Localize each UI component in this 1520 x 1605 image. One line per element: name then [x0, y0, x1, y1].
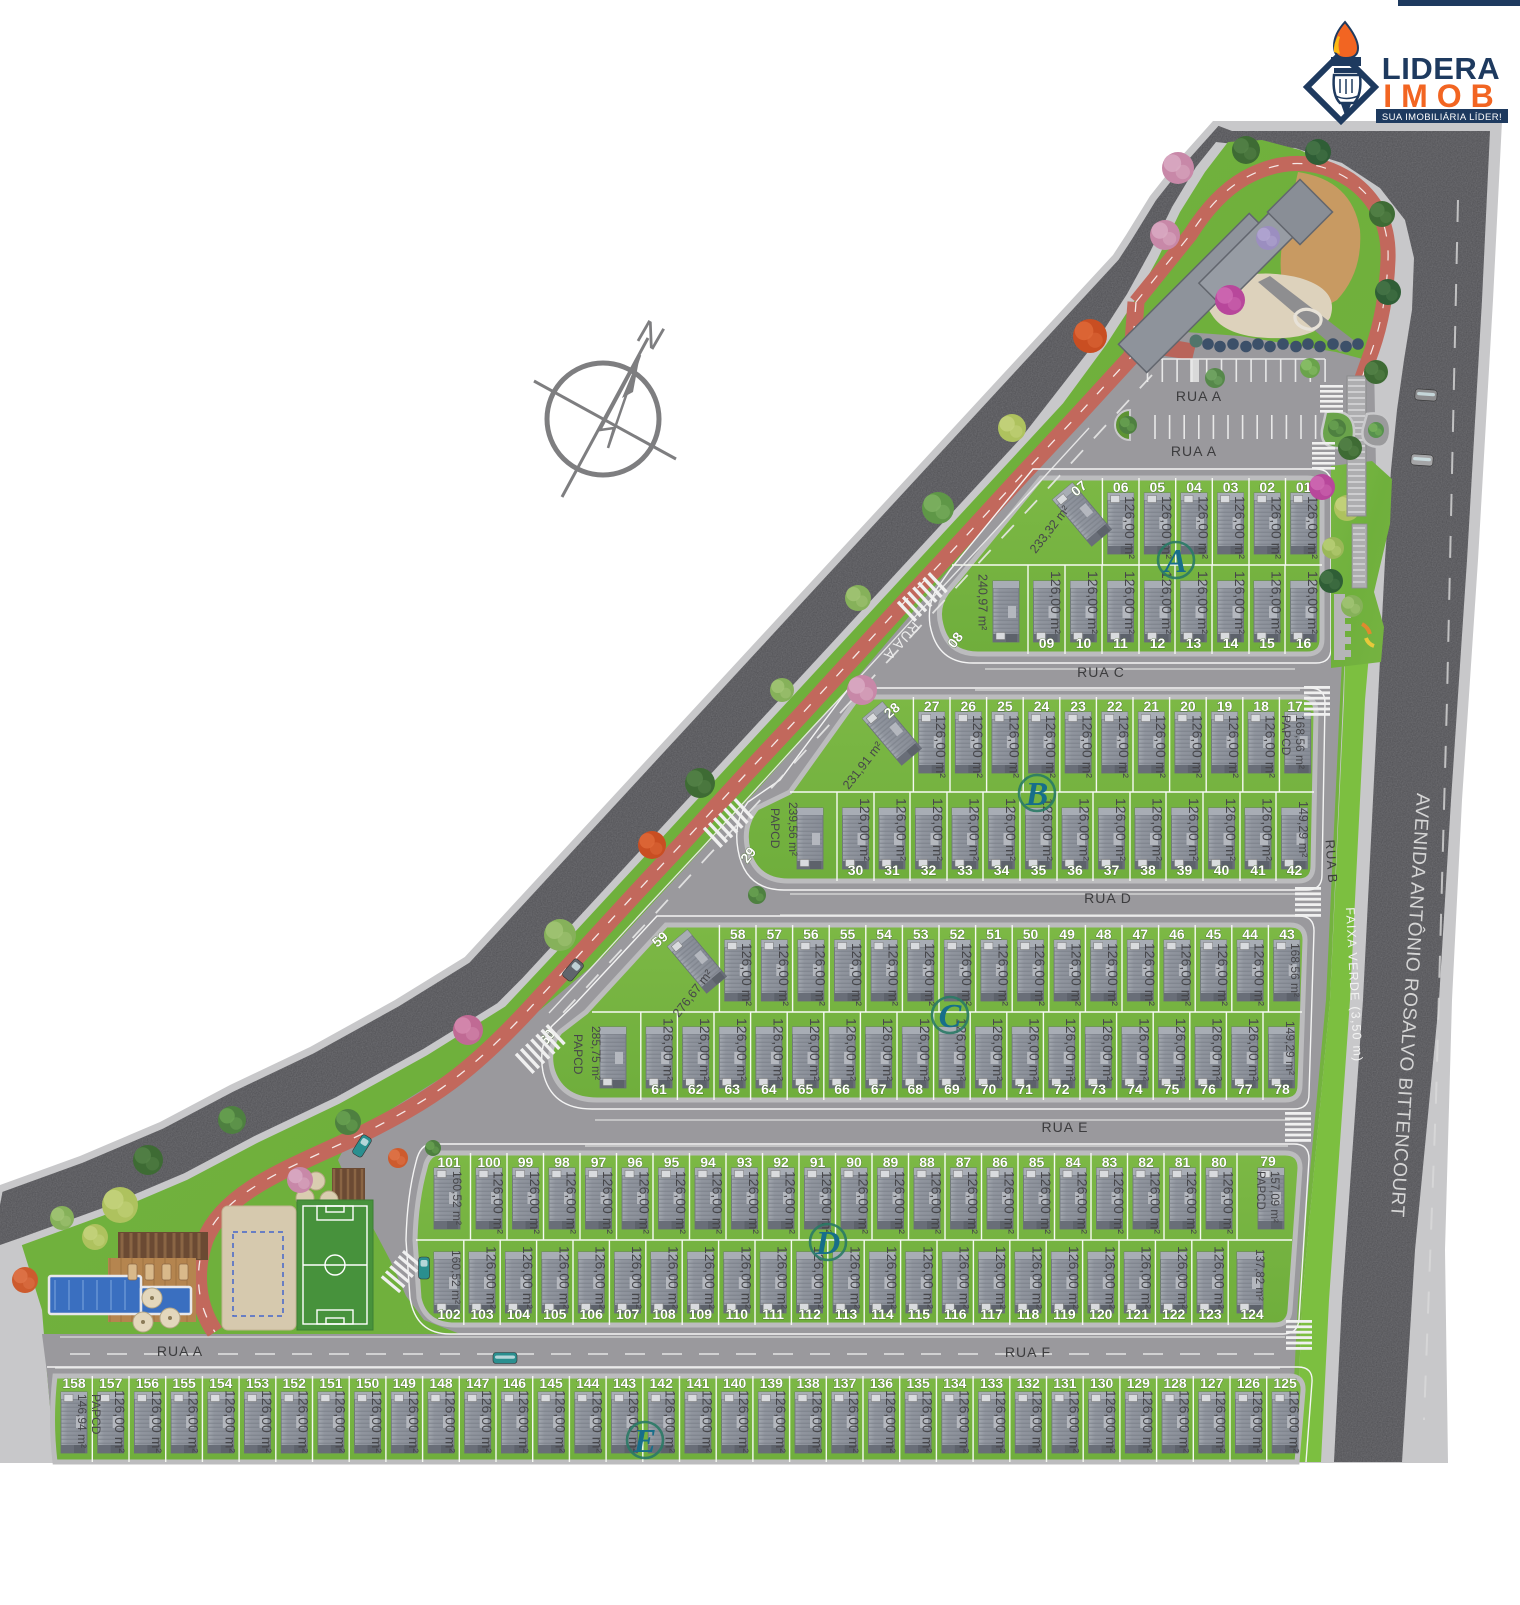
svg-text:A: A [1163, 543, 1188, 580]
svg-text:26: 26 [961, 698, 977, 714]
svg-text:137,82 m²: 137,82 m² [1253, 1249, 1265, 1301]
svg-text:126,00 m²: 126,00 m² [600, 1171, 616, 1234]
svg-text:126,00 m²: 126,00 m² [149, 1390, 165, 1453]
svg-text:126,00 m²: 126,00 m² [930, 798, 946, 861]
svg-text:72: 72 [1054, 1081, 1070, 1097]
svg-text:93: 93 [737, 1154, 753, 1170]
svg-text:73: 73 [1091, 1081, 1107, 1097]
svg-text:42: 42 [1287, 862, 1303, 878]
svg-text:126,00 m²: 126,00 m² [699, 1390, 715, 1453]
svg-text:66: 66 [834, 1081, 850, 1097]
svg-text:126,00 m²: 126,00 m² [1136, 1018, 1152, 1081]
svg-text:87: 87 [956, 1154, 972, 1170]
svg-text:126,00 m²: 126,00 m² [1232, 496, 1248, 559]
svg-text:126,00 m²: 126,00 m² [1213, 1390, 1229, 1453]
svg-text:150: 150 [356, 1375, 380, 1391]
svg-text:126,00 m²: 126,00 m² [1069, 943, 1085, 1006]
svg-text:84: 84 [1065, 1154, 1081, 1170]
svg-text:126,00 m²: 126,00 m² [1006, 715, 1022, 778]
svg-text:D: D [815, 1225, 841, 1262]
svg-text:97: 97 [591, 1154, 607, 1170]
svg-text:82: 82 [1138, 1154, 1154, 1170]
svg-text:126,00 m²: 126,00 m² [553, 1390, 569, 1453]
svg-text:38: 38 [1140, 862, 1156, 878]
svg-text:285,75 m²: 285,75 m² [589, 1026, 603, 1080]
svg-text:75: 75 [1164, 1081, 1180, 1097]
svg-text:143: 143 [613, 1375, 637, 1391]
svg-text:126,00 m²: 126,00 m² [965, 1171, 981, 1234]
svg-text:88: 88 [919, 1154, 935, 1170]
svg-text:23: 23 [1070, 698, 1086, 714]
svg-text:126,00 m²: 126,00 m² [697, 1018, 713, 1081]
svg-text:126,00 m²: 126,00 m² [1048, 571, 1064, 634]
svg-text:126,00 m²: 126,00 m² [920, 1390, 936, 1453]
svg-text:126,00 m²: 126,00 m² [1246, 1018, 1262, 1081]
svg-text:126,00 m²: 126,00 m² [663, 1390, 679, 1453]
svg-text:126,00 m²: 126,00 m² [1195, 571, 1211, 634]
svg-text:17: 17 [1287, 698, 1303, 714]
svg-text:61: 61 [651, 1081, 667, 1097]
svg-text:92: 92 [773, 1154, 789, 1170]
svg-text:PAPCD: PAPCD [768, 808, 782, 849]
svg-text:126,00 m²: 126,00 m² [520, 1246, 536, 1309]
svg-text:52: 52 [950, 926, 966, 942]
svg-text:11: 11 [1113, 635, 1128, 651]
svg-text:126,00 m²: 126,00 m² [848, 1246, 864, 1309]
svg-text:126,00 m²: 126,00 m² [993, 1246, 1009, 1309]
svg-text:157,09 m²: 157,09 m² [1268, 1171, 1280, 1223]
svg-text:126,00 m²: 126,00 m² [1153, 715, 1169, 778]
svg-text:69: 69 [944, 1081, 960, 1097]
svg-text:15: 15 [1259, 635, 1275, 651]
svg-text:133: 133 [980, 1375, 1004, 1391]
svg-text:142: 142 [650, 1375, 674, 1391]
svg-text:126,00 m²: 126,00 m² [222, 1390, 238, 1453]
svg-text:21: 21 [1144, 698, 1160, 714]
svg-text:168,56 m²: 168,56 m² [1293, 715, 1307, 769]
svg-text:126,00 m²: 126,00 m² [484, 1246, 500, 1309]
svg-text:126,00 m²: 126,00 m² [770, 1018, 786, 1081]
svg-text:126,00 m²: 126,00 m² [1075, 1171, 1091, 1234]
svg-text:126,00 m²: 126,00 m² [1103, 1390, 1119, 1453]
svg-text:22: 22 [1107, 698, 1123, 714]
svg-text:128: 128 [1163, 1375, 1187, 1391]
svg-text:RUA A: RUA A [1171, 443, 1217, 459]
svg-text:83: 83 [1102, 1154, 1118, 1170]
svg-text:126,00 m²: 126,00 m² [773, 1390, 789, 1453]
svg-text:RUA E: RUA E [1041, 1119, 1088, 1135]
svg-text:126,00 m²: 126,00 m² [929, 1171, 945, 1234]
svg-text:RUA A: RUA A [1176, 388, 1222, 404]
svg-text:126,00 m²: 126,00 m² [957, 1246, 973, 1309]
svg-text:125: 125 [1273, 1375, 1297, 1391]
svg-text:135: 135 [906, 1375, 930, 1391]
svg-text:39: 39 [1177, 862, 1193, 878]
svg-text:126,00 m²: 126,00 m² [1223, 798, 1239, 861]
svg-text:91: 91 [810, 1154, 826, 1170]
svg-text:05: 05 [1150, 479, 1166, 495]
svg-text:126,00 m²: 126,00 m² [1142, 943, 1158, 1006]
svg-text:33: 33 [957, 862, 973, 878]
svg-text:30: 30 [848, 862, 864, 878]
svg-text:126,00 m²: 126,00 m² [970, 715, 986, 778]
svg-text:126,00 m²: 126,00 m² [1032, 943, 1048, 1006]
svg-text:56: 56 [803, 926, 819, 942]
svg-text:240,97 m²: 240,97 m² [976, 574, 990, 630]
svg-text:77: 77 [1237, 1081, 1253, 1097]
svg-text:62: 62 [688, 1081, 704, 1097]
svg-text:126,00 m²: 126,00 m² [1140, 1390, 1156, 1453]
svg-text:126,00 m²: 126,00 m² [1189, 715, 1205, 778]
svg-text:13: 13 [1186, 635, 1202, 651]
svg-text:126,00 m²: 126,00 m² [1066, 1390, 1082, 1453]
svg-text:40: 40 [1214, 862, 1230, 878]
svg-text:126,00 m²: 126,00 m² [1003, 798, 1019, 861]
svg-text:138: 138 [796, 1375, 820, 1391]
svg-text:53: 53 [913, 926, 929, 942]
svg-text:126,00 m²: 126,00 m² [1030, 1246, 1046, 1309]
svg-text:48: 48 [1096, 926, 1112, 942]
svg-text:71: 71 [1017, 1081, 1033, 1097]
svg-text:126,00 m²: 126,00 m² [479, 1390, 495, 1453]
svg-text:168,56 m²: 168,56 m² [1288, 943, 1302, 997]
svg-text:57: 57 [767, 926, 783, 942]
svg-text:16: 16 [1296, 635, 1312, 651]
svg-text:78: 78 [1274, 1081, 1290, 1097]
svg-text:126,00 m²: 126,00 m² [1250, 1390, 1266, 1453]
svg-text:126,00 m²: 126,00 m² [556, 1246, 572, 1309]
svg-text:20: 20 [1180, 698, 1196, 714]
svg-text:126,00 m²: 126,00 m² [702, 1246, 718, 1309]
svg-text:126,00 m²: 126,00 m² [589, 1390, 605, 1453]
svg-text:PAPCD: PAPCD [571, 1034, 585, 1075]
svg-text:99: 99 [518, 1154, 534, 1170]
svg-text:126,00 m²: 126,00 m² [1116, 715, 1132, 778]
svg-text:C: C [939, 998, 962, 1035]
svg-text:126,00 m²: 126,00 m² [810, 1390, 826, 1453]
svg-text:126,00 m²: 126,00 m² [1173, 1018, 1189, 1081]
svg-text:18: 18 [1253, 698, 1269, 714]
svg-text:144: 144 [576, 1375, 600, 1391]
svg-text:79: 79 [1260, 1153, 1276, 1169]
svg-text:RUA A: RUA A [157, 1343, 203, 1359]
svg-text:134: 134 [943, 1375, 967, 1391]
svg-text:126,00 m²: 126,00 m² [734, 1018, 750, 1081]
svg-text:126,00 m²: 126,00 m² [1002, 1171, 1018, 1234]
svg-text:126,00 m²: 126,00 m² [369, 1390, 385, 1453]
svg-text:124: 124 [1240, 1306, 1264, 1322]
svg-text:140: 140 [723, 1375, 747, 1391]
svg-text:126,00 m²: 126,00 m² [112, 1390, 128, 1453]
svg-text:51: 51 [986, 926, 1002, 942]
svg-text:126,00 m²: 126,00 m² [894, 798, 910, 861]
svg-text:50: 50 [1023, 926, 1039, 942]
svg-text:126,00 m²: 126,00 m² [1102, 1246, 1118, 1309]
svg-text:126,00 m²: 126,00 m² [1212, 1246, 1228, 1309]
svg-text:64: 64 [761, 1081, 777, 1097]
svg-text:10: 10 [1076, 635, 1092, 651]
svg-text:126,00 m²: 126,00 m² [1252, 943, 1268, 1006]
svg-text:126,00 m²: 126,00 m² [1215, 943, 1231, 1006]
svg-text:70: 70 [981, 1081, 997, 1097]
svg-text:19: 19 [1217, 698, 1233, 714]
svg-text:126,00 m²: 126,00 m² [995, 943, 1011, 1006]
svg-text:148: 148 [429, 1375, 453, 1391]
svg-text:43: 43 [1279, 926, 1295, 942]
svg-text:126,00 m²: 126,00 m² [776, 943, 792, 1006]
svg-text:B: B [1025, 776, 1049, 813]
svg-text:95: 95 [664, 1154, 680, 1170]
svg-text:PAPCD: PAPCD [89, 1394, 103, 1435]
svg-text:127: 127 [1200, 1375, 1224, 1391]
svg-text:155: 155 [172, 1375, 196, 1391]
svg-text:126,00 m²: 126,00 m² [775, 1246, 791, 1309]
svg-text:126,00 m²: 126,00 m² [856, 1171, 872, 1234]
svg-text:126,00 m²: 126,00 m² [746, 1171, 762, 1234]
svg-text:67: 67 [871, 1081, 887, 1097]
svg-text:RUA C: RUA C [1077, 664, 1125, 680]
svg-text:74: 74 [1127, 1081, 1143, 1097]
svg-text:90: 90 [846, 1154, 862, 1170]
svg-text:146: 146 [503, 1375, 527, 1391]
svg-text:126,00 m²: 126,00 m² [844, 1018, 860, 1081]
svg-text:126,00 m²: 126,00 m² [1111, 1171, 1127, 1234]
svg-text:132: 132 [1017, 1375, 1041, 1391]
svg-text:126,00 m²: 126,00 m² [922, 943, 938, 1006]
svg-text:126,00 m²: 126,00 m² [917, 1018, 933, 1081]
svg-text:129: 129 [1127, 1375, 1151, 1391]
svg-text:32: 32 [921, 862, 937, 878]
svg-text:126,00 m²: 126,00 m² [296, 1390, 312, 1453]
svg-text:158: 158 [62, 1375, 86, 1391]
svg-text:80: 80 [1211, 1154, 1227, 1170]
svg-text:151: 151 [319, 1375, 343, 1391]
svg-text:126,00 m²: 126,00 m² [1210, 1018, 1226, 1081]
svg-text:44: 44 [1242, 926, 1258, 942]
svg-text:126,00 m²: 126,00 m² [1030, 1390, 1046, 1453]
svg-text:41: 41 [1250, 862, 1266, 878]
svg-text:146,94 m²: 146,94 m² [75, 1394, 89, 1448]
svg-text:126,00 m²: 126,00 m² [920, 1246, 936, 1309]
svg-text:89: 89 [883, 1154, 899, 1170]
svg-text:55: 55 [840, 926, 856, 942]
svg-text:85: 85 [1029, 1154, 1045, 1170]
svg-text:126,00 m²: 126,00 m² [1184, 1171, 1200, 1234]
svg-text:34: 34 [994, 862, 1010, 878]
svg-text:RUA F: RUA F [1005, 1344, 1051, 1360]
svg-text:239,56 m²: 239,56 m² [786, 802, 800, 856]
svg-text:126,00 m²: 126,00 m² [1139, 1246, 1155, 1309]
svg-text:126,00 m²: 126,00 m² [1221, 1171, 1237, 1234]
svg-text:147: 147 [466, 1375, 490, 1391]
svg-text:126,00 m²: 126,00 m² [1027, 1018, 1043, 1081]
svg-text:126,00 m²: 126,00 m² [1305, 571, 1321, 634]
svg-text:157: 157 [99, 1375, 123, 1391]
svg-text:126,00 m²: 126,00 m² [1178, 943, 1194, 1006]
svg-text:68: 68 [908, 1081, 924, 1097]
svg-text:126,00 m²: 126,00 m² [666, 1246, 682, 1309]
svg-text:102: 102 [437, 1306, 461, 1322]
svg-text:126,00 m²: 126,00 m² [1038, 1171, 1054, 1234]
svg-text:IMOB: IMOB [1383, 78, 1503, 114]
svg-text:126,00 m²: 126,00 m² [1226, 715, 1242, 778]
svg-text:02: 02 [1259, 479, 1275, 495]
svg-text:126,00 m²: 126,00 m² [892, 1171, 908, 1234]
svg-text:126,00 m²: 126,00 m² [846, 1390, 862, 1453]
svg-text:126,00 m²: 126,00 m² [1186, 798, 1202, 861]
svg-text:126,00 m²: 126,00 m² [491, 1171, 507, 1234]
svg-text:126,00 m²: 126,00 m² [406, 1390, 422, 1453]
svg-text:96: 96 [627, 1154, 643, 1170]
svg-text:126,00 m²: 126,00 m² [812, 943, 828, 1006]
svg-text:E: E [633, 1423, 657, 1460]
svg-text:136: 136 [870, 1375, 894, 1391]
svg-text:RUA D: RUA D [1084, 890, 1132, 906]
svg-text:149,29 m²: 149,29 m² [1283, 1021, 1297, 1075]
svg-text:126,00 m²: 126,00 m² [739, 943, 755, 1006]
svg-text:54: 54 [876, 926, 892, 942]
svg-text:126,00 m²: 126,00 m² [990, 1018, 1006, 1081]
svg-text:126,00 m²: 126,00 m² [527, 1171, 543, 1234]
svg-text:126,00 m²: 126,00 m² [1232, 571, 1248, 634]
svg-text:126,00 m²: 126,00 m² [1196, 496, 1212, 559]
svg-text:126,00 m²: 126,00 m² [1063, 1018, 1079, 1081]
svg-text:06: 06 [1113, 479, 1129, 495]
svg-text:58: 58 [730, 926, 746, 942]
svg-text:65: 65 [798, 1081, 814, 1097]
svg-text:126,00 m²: 126,00 m² [1159, 571, 1175, 634]
svg-text:126,00 m²: 126,00 m² [1269, 571, 1285, 634]
svg-text:141: 141 [686, 1375, 710, 1391]
svg-text:126,00 m²: 126,00 m² [1077, 798, 1093, 861]
svg-text:49: 49 [1059, 926, 1075, 942]
svg-text:126,00 m²: 126,00 m² [593, 1246, 609, 1309]
svg-text:45: 45 [1206, 926, 1222, 942]
svg-text:126,00 m²: 126,00 m² [1150, 798, 1166, 861]
svg-text:25: 25 [997, 698, 1013, 714]
svg-text:31: 31 [884, 862, 900, 878]
svg-text:126,00 m²: 126,00 m² [849, 943, 865, 1006]
svg-text:94: 94 [700, 1154, 716, 1170]
svg-text:RUA B: RUA B [1322, 839, 1340, 884]
svg-text:47: 47 [1133, 926, 1149, 942]
svg-text:130: 130 [1090, 1375, 1114, 1391]
svg-text:126,00 m²: 126,00 m² [1105, 943, 1121, 1006]
svg-text:126,00 m²: 126,00 m² [629, 1246, 645, 1309]
svg-text:137: 137 [833, 1375, 857, 1391]
svg-text:145: 145 [539, 1375, 563, 1391]
svg-text:126,00 m²: 126,00 m² [1085, 571, 1101, 634]
svg-text:126,00 m²: 126,00 m² [1269, 496, 1285, 559]
svg-text:126,00 m²: 126,00 m² [857, 798, 873, 861]
svg-text:03: 03 [1223, 479, 1239, 495]
svg-text:126,00 m²: 126,00 m² [637, 1171, 653, 1234]
svg-text:12: 12 [1150, 635, 1166, 651]
svg-text:126,00 m²: 126,00 m² [1305, 496, 1321, 559]
svg-text:126,00 m²: 126,00 m² [1122, 496, 1138, 559]
svg-text:63: 63 [725, 1081, 741, 1097]
svg-text:126,00 m²: 126,00 m² [259, 1390, 275, 1453]
svg-text:126,00 m²: 126,00 m² [332, 1390, 348, 1453]
svg-text:37: 37 [1104, 862, 1120, 878]
svg-text:149: 149 [393, 1375, 417, 1391]
svg-text:126,00 m²: 126,00 m² [738, 1246, 754, 1309]
svg-text:139: 139 [760, 1375, 784, 1391]
svg-text:46: 46 [1169, 926, 1185, 942]
svg-text:126,00 m²: 126,00 m² [883, 1390, 899, 1453]
svg-text:126,00 m²: 126,00 m² [1100, 1018, 1116, 1081]
svg-text:126,00 m²: 126,00 m² [1043, 715, 1059, 778]
svg-text:126,00 m²: 126,00 m² [1080, 715, 1096, 778]
svg-text:160,52 m²: 160,52 m² [450, 1171, 464, 1225]
svg-text:153: 153 [246, 1375, 270, 1391]
svg-text:126,00 m²: 126,00 m² [1177, 1390, 1193, 1453]
svg-text:98: 98 [554, 1154, 570, 1170]
svg-text:86: 86 [992, 1154, 1008, 1170]
svg-text:126,00 m²: 126,00 m² [736, 1390, 752, 1453]
svg-text:126,00 m²: 126,00 m² [661, 1018, 677, 1081]
svg-text:126,00 m²: 126,00 m² [933, 715, 949, 778]
svg-text:126,00 m²: 126,00 m² [710, 1171, 726, 1234]
svg-text:126,00 m²: 126,00 m² [1113, 798, 1129, 861]
svg-text:126,00 m²: 126,00 m² [186, 1390, 202, 1453]
svg-text:126,00 m²: 126,00 m² [967, 798, 983, 861]
svg-text:126,00 m²: 126,00 m² [1066, 1246, 1082, 1309]
svg-text:126,00 m²: 126,00 m² [564, 1171, 580, 1234]
svg-text:126,00 m²: 126,00 m² [880, 1018, 896, 1081]
svg-text:76: 76 [1200, 1081, 1216, 1097]
svg-text:131: 131 [1053, 1375, 1077, 1391]
svg-text:35: 35 [1031, 862, 1047, 878]
svg-text:160,52 m²: 160,52 m² [449, 1250, 463, 1304]
svg-text:36: 36 [1067, 862, 1083, 878]
svg-text:PAPCD: PAPCD [1279, 715, 1293, 756]
svg-text:126,00 m²: 126,00 m² [1148, 1171, 1164, 1234]
svg-text:81: 81 [1175, 1154, 1191, 1170]
svg-text:SUA IMOBILIÁRIA LÍDER!: SUA IMOBILIÁRIA LÍDER! [1382, 112, 1502, 123]
svg-text:126,00 m²: 126,00 m² [1175, 1246, 1191, 1309]
svg-text:126,00 m²: 126,00 m² [1263, 715, 1279, 778]
svg-text:126,00 m²: 126,00 m² [783, 1171, 799, 1234]
svg-text:126,00 m²: 126,00 m² [886, 943, 902, 1006]
svg-text:PAPCD: PAPCD [1254, 1171, 1266, 1210]
svg-text:126: 126 [1237, 1375, 1261, 1391]
svg-text:04: 04 [1186, 479, 1202, 495]
svg-text:126,00 m²: 126,00 m² [884, 1246, 900, 1309]
svg-text:126,00 m²: 126,00 m² [807, 1018, 823, 1081]
svg-text:126,00 m²: 126,00 m² [1122, 571, 1138, 634]
svg-text:27: 27 [924, 698, 940, 714]
svg-text:126,00 m²: 126,00 m² [1287, 1390, 1303, 1453]
svg-text:101: 101 [437, 1154, 461, 1170]
svg-text:154: 154 [209, 1375, 233, 1391]
svg-text:09: 09 [1039, 635, 1055, 651]
svg-text:126,00 m²: 126,00 m² [516, 1390, 532, 1453]
svg-text:24: 24 [1034, 698, 1050, 714]
svg-text:126,00 m²: 126,00 m² [959, 943, 975, 1006]
svg-text:14: 14 [1223, 635, 1239, 651]
svg-text:100: 100 [477, 1154, 501, 1170]
svg-text:152: 152 [283, 1375, 307, 1391]
svg-text:126,00 m²: 126,00 m² [673, 1171, 689, 1234]
svg-text:126,00 m²: 126,00 m² [443, 1390, 459, 1453]
svg-text:126,00 m²: 126,00 m² [993, 1390, 1009, 1453]
svg-text:149,29 m²: 149,29 m² [1296, 801, 1310, 857]
svg-text:126,00 m²: 126,00 m² [956, 1390, 972, 1453]
svg-text:156: 156 [136, 1375, 160, 1391]
svg-text:126,00 m²: 126,00 m² [1260, 798, 1276, 861]
